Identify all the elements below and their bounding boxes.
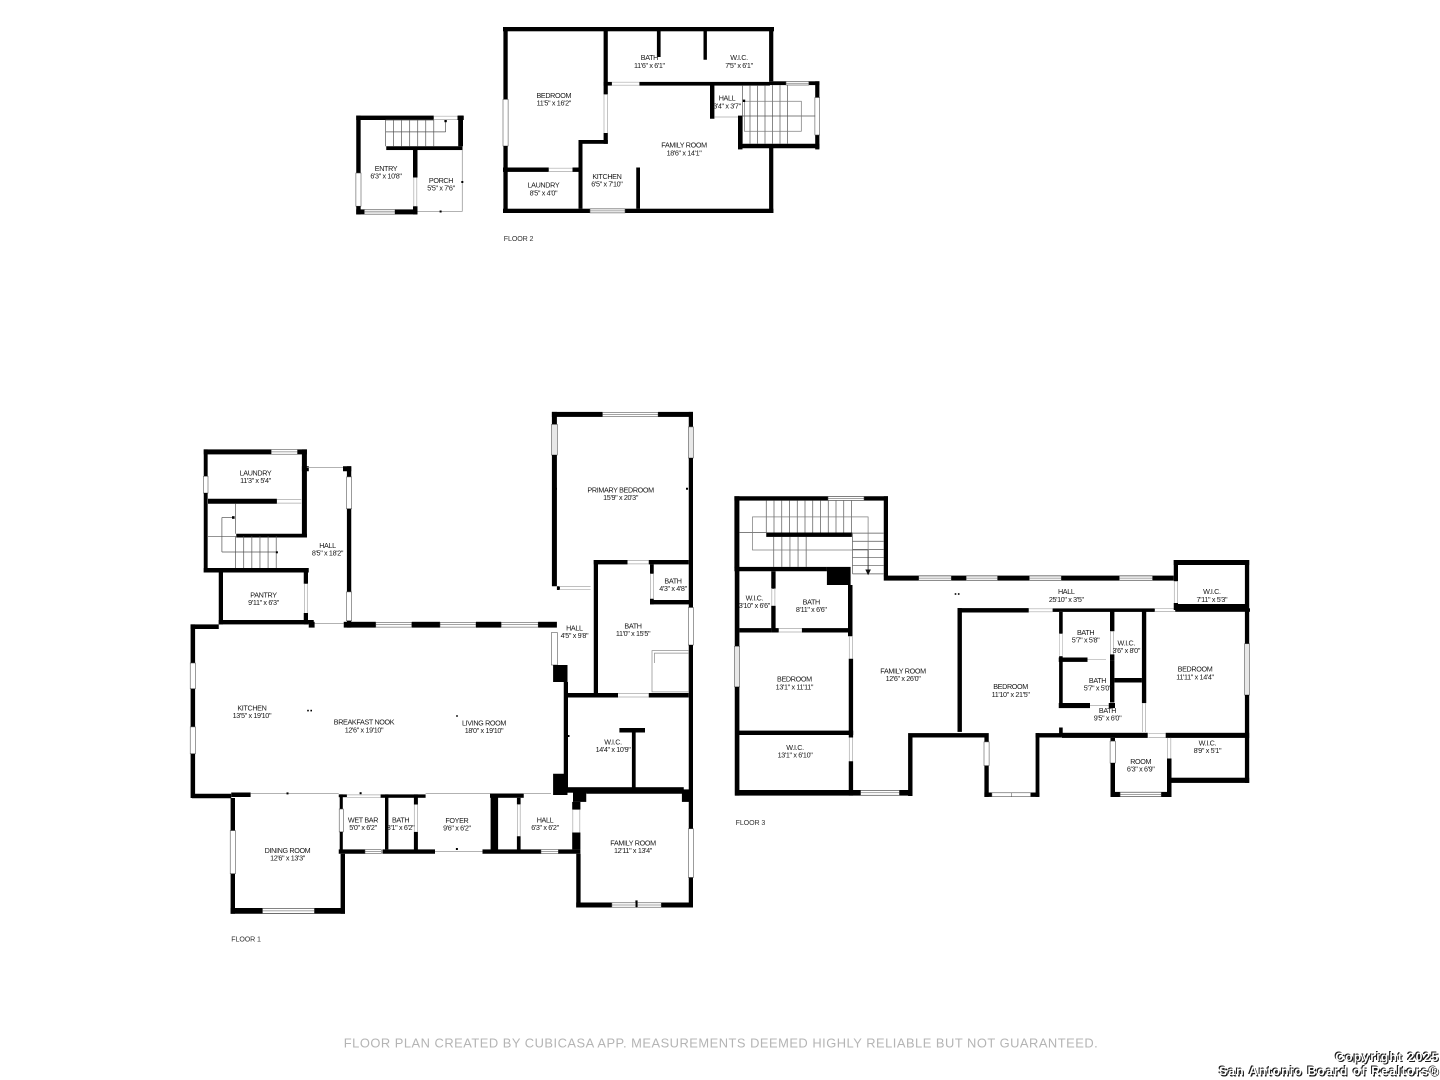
svg-text:7'5" x 6'1": 7'5" x 6'1" <box>725 61 753 70</box>
svg-text:18'0" x 19'10": 18'0" x 19'10" <box>465 726 504 735</box>
svg-text:9'11" x 6'3": 9'11" x 6'3" <box>248 598 279 607</box>
svg-text:Copyright 2025: Copyright 2025 <box>1335 1050 1439 1064</box>
svg-text:5'0" x 6'2": 5'0" x 6'2" <box>349 823 377 832</box>
svg-text:12'6" x 19'10": 12'6" x 19'10" <box>345 725 384 734</box>
svg-text:12'6" x 26'0": 12'6" x 26'0" <box>886 674 922 683</box>
svg-text:11'0" x 15'5": 11'0" x 15'5" <box>616 629 651 638</box>
svg-text:18'6" x 14'1": 18'6" x 14'1" <box>667 148 703 157</box>
svg-text:3'6" x 8'0": 3'6" x 8'0" <box>1112 646 1140 655</box>
svg-text:3'10" x 6'6": 3'10" x 6'6" <box>739 601 771 610</box>
svg-text:13'1" x 11'11": 13'1" x 11'11" <box>776 682 814 691</box>
svg-text:FLOOR PLAN CREATED BY CUBICASA: FLOOR PLAN CREATED BY CUBICASA APP. MEAS… <box>344 1035 1098 1050</box>
svg-text:13'1" x 6'10": 13'1" x 6'10" <box>778 750 814 759</box>
svg-text:15'9" x 20'3": 15'9" x 20'3" <box>603 493 639 502</box>
svg-text:6'3" x 6'9": 6'3" x 6'9" <box>1127 765 1155 774</box>
svg-text:San Antonio Board of Realtors®: San Antonio Board of Realtors® <box>1219 1064 1439 1078</box>
svg-text:8'5" x 18'2": 8'5" x 18'2" <box>312 549 344 558</box>
svg-text:6'3" x 6'2": 6'3" x 6'2" <box>531 823 559 832</box>
svg-text:4'3" x 4'8": 4'3" x 4'8" <box>659 584 687 593</box>
svg-text:5'7" x 5'0": 5'7" x 5'0" <box>1084 684 1112 693</box>
svg-text:11'11" x 14'4": 11'11" x 14'4" <box>1176 672 1214 681</box>
svg-text:4'5" x 9'8": 4'5" x 9'8" <box>561 631 589 640</box>
svg-text:12'6" x 13'3": 12'6" x 13'3" <box>270 854 306 863</box>
svg-text:13'5" x 19'10": 13'5" x 19'10" <box>233 711 272 720</box>
svg-text:25'10" x 3'5": 25'10" x 3'5" <box>1049 595 1085 604</box>
svg-text:11'5" x 16'2": 11'5" x 16'2" <box>537 99 572 108</box>
svg-text:5'7" x 5'8": 5'7" x 5'8" <box>1072 635 1100 644</box>
svg-text:11'10" x 21'5": 11'10" x 21'5" <box>992 690 1031 699</box>
svg-text:FLOOR 3: FLOOR 3 <box>736 819 766 827</box>
svg-text:12'11" x 13'4": 12'11" x 13'4" <box>614 846 653 855</box>
svg-text:11'6" x 6'1": 11'6" x 6'1" <box>634 61 665 70</box>
svg-text:11'3" x 5'4": 11'3" x 5'4" <box>240 476 271 485</box>
svg-text:6'5" x 7'10": 6'5" x 7'10" <box>591 180 623 189</box>
svg-text:8'5" x 4'0": 8'5" x 4'0" <box>530 188 558 197</box>
svg-text:9'6" x 6'2": 9'6" x 6'2" <box>443 824 471 833</box>
svg-text:7'11" x 5'3": 7'11" x 5'3" <box>1197 595 1228 604</box>
svg-text:14'4" x 10'9": 14'4" x 10'9" <box>596 745 632 754</box>
svg-text:8'9" x 5'1": 8'9" x 5'1" <box>1194 746 1222 755</box>
svg-text:3'4" x 3'7": 3'4" x 3'7" <box>713 101 741 110</box>
svg-text:3'1" x 6'2": 3'1" x 6'2" <box>387 823 415 832</box>
svg-text:9'5" x 6'0": 9'5" x 6'0" <box>1094 714 1122 723</box>
svg-text:FLOOR 2: FLOOR 2 <box>504 235 534 243</box>
svg-text:FLOOR 1: FLOOR 1 <box>231 936 261 944</box>
svg-text:5'5" x 7'6": 5'5" x 7'6" <box>427 183 455 192</box>
svg-text:6'3" x 10'8": 6'3" x 10'8" <box>370 171 402 180</box>
svg-text:8'11" x 6'6": 8'11" x 6'6" <box>796 605 827 614</box>
